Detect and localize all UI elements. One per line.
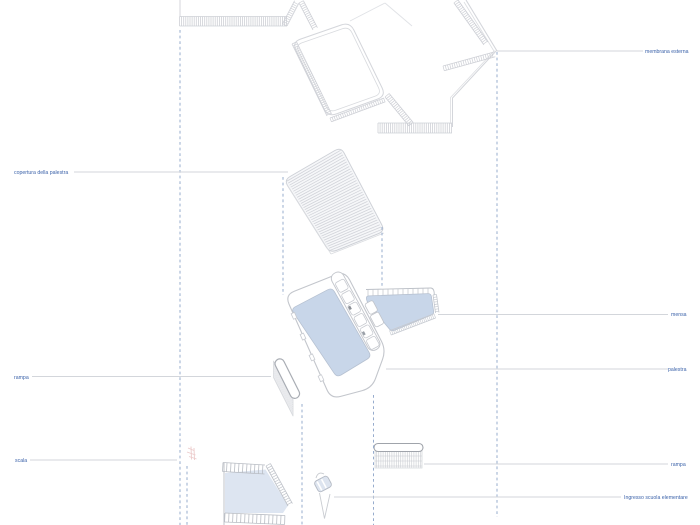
svg-text:rampa: rampa (14, 375, 29, 381)
svg-text:Ingresso scuola elementare: Ingresso scuola elementare (624, 495, 688, 501)
svg-text:rampa: rampa (671, 462, 686, 468)
svg-text:palestra: palestra (668, 367, 687, 373)
svg-text:copertura della palestra: copertura della palestra (14, 170, 68, 176)
svg-text:mensa: mensa (671, 312, 687, 318)
svg-text:scala: scala (15, 458, 27, 464)
svg-text:membrana esterna: membrana esterna (645, 49, 689, 55)
